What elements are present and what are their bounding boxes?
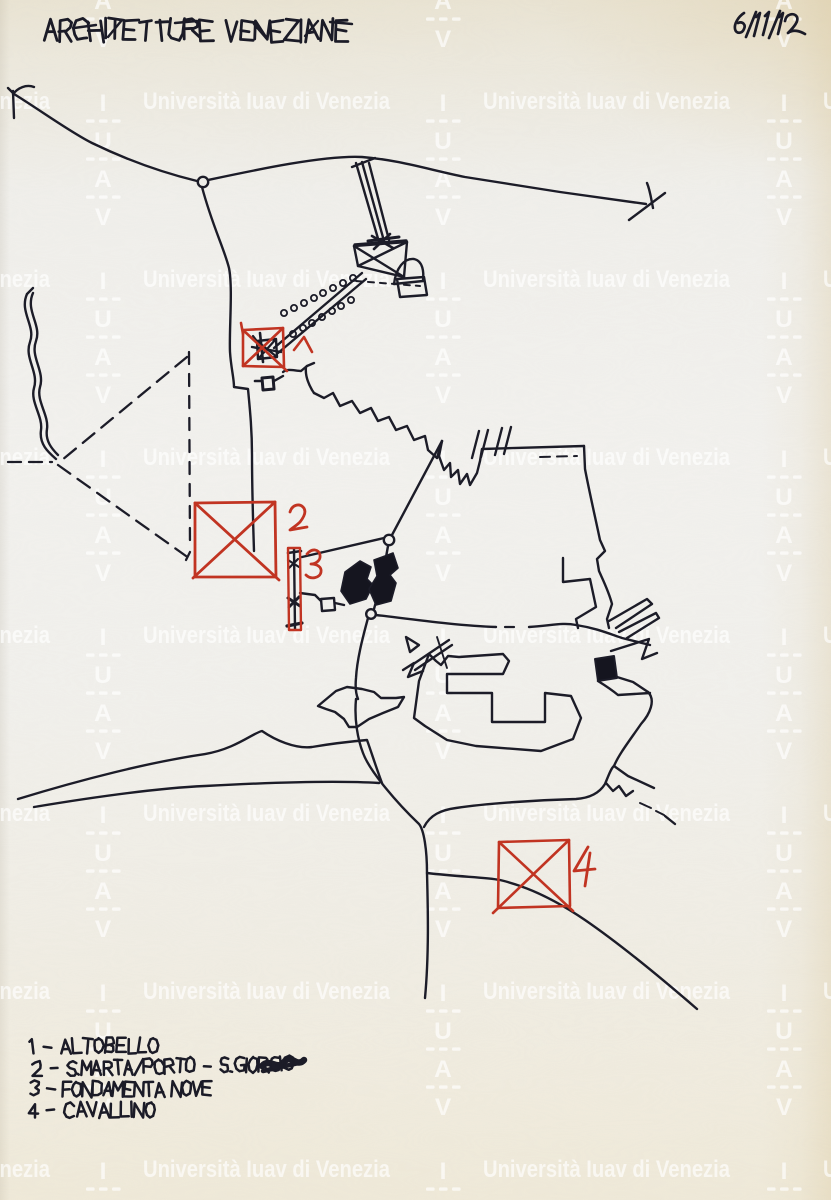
svg-text:A: A xyxy=(775,522,793,549)
svg-text:A: A xyxy=(775,166,793,193)
svg-text:I: I xyxy=(781,980,788,1007)
svg-text:U: U xyxy=(775,484,793,511)
svg-text:Università Iuav di Venezia: Università Iuav di Venezia xyxy=(143,88,390,115)
svg-text:V: V xyxy=(435,26,452,53)
svg-text:I: I xyxy=(100,1158,107,1185)
svg-text:Università Iuav di Venezia: Università Iuav di Venezia xyxy=(823,800,831,827)
svg-text:U: U xyxy=(434,484,452,511)
svg-text:V: V xyxy=(776,204,793,231)
svg-text:V: V xyxy=(95,382,112,409)
svg-text:A: A xyxy=(434,522,452,549)
svg-text:U: U xyxy=(434,306,452,333)
svg-text:I: I xyxy=(100,90,107,117)
svg-text:U: U xyxy=(94,306,112,333)
svg-text:V: V xyxy=(776,1094,793,1121)
svg-text:Università Iuav di Venezia: Università Iuav di Venezia xyxy=(483,978,730,1005)
svg-text:A: A xyxy=(434,878,452,905)
svg-text:U: U xyxy=(775,840,793,867)
svg-text:I: I xyxy=(440,1158,447,1185)
svg-text:A: A xyxy=(94,878,112,905)
svg-text:Università Iuav di Venezia: Università Iuav di Venezia xyxy=(483,88,730,115)
svg-text:I: I xyxy=(440,90,447,117)
svg-text:Università Iuav di Venezia: Università Iuav di Venezia xyxy=(0,444,50,471)
svg-text:I: I xyxy=(781,268,788,295)
svg-text:I: I xyxy=(781,624,788,651)
svg-text:A: A xyxy=(94,344,112,371)
svg-text:Università Iuav di Venezia: Università Iuav di Venezia xyxy=(823,88,831,115)
svg-text:I: I xyxy=(440,980,447,1007)
svg-text:I: I xyxy=(100,624,107,651)
svg-text:Università Iuav di Venezia: Università Iuav di Venezia xyxy=(0,622,50,649)
svg-text:U: U xyxy=(775,128,793,155)
svg-text:Università Iuav di Venezia: Università Iuav di Venezia xyxy=(0,800,50,827)
svg-text:V: V xyxy=(95,738,112,765)
svg-text:I: I xyxy=(781,90,788,117)
svg-text:A: A xyxy=(434,344,452,371)
svg-text:A: A xyxy=(434,1056,452,1083)
svg-text:A: A xyxy=(94,0,112,15)
svg-text:A: A xyxy=(94,700,112,727)
svg-text:Università Iuav di Venezia: Università Iuav di Venezia xyxy=(143,444,390,471)
svg-text:V: V xyxy=(435,560,452,587)
svg-text:I: I xyxy=(100,802,107,829)
svg-text:U: U xyxy=(94,840,112,867)
svg-text:I: I xyxy=(440,268,447,295)
svg-text:V: V xyxy=(95,204,112,231)
svg-text:V: V xyxy=(776,382,793,409)
svg-text:U: U xyxy=(434,128,452,155)
svg-text:I: I xyxy=(781,1158,788,1185)
svg-text:I: I xyxy=(440,802,447,829)
svg-text:V: V xyxy=(776,738,793,765)
svg-text:V: V xyxy=(435,382,452,409)
svg-text:Università Iuav di Venezia: Università Iuav di Venezia xyxy=(823,622,831,649)
svg-text:A: A xyxy=(434,0,452,15)
svg-text:I: I xyxy=(100,446,107,473)
svg-text:Università Iuav di Venezia: Università Iuav di Venezia xyxy=(823,266,831,293)
svg-text:Università Iuav di Venezia: Università Iuav di Venezia xyxy=(0,978,50,1005)
svg-text:A: A xyxy=(434,700,452,727)
svg-text:A: A xyxy=(775,1056,793,1083)
svg-text:Università Iuav di Venezia: Università Iuav di Venezia xyxy=(0,1156,50,1183)
svg-text:A: A xyxy=(775,700,793,727)
svg-text:Università Iuav di Venezia: Università Iuav di Venezia xyxy=(823,444,831,471)
svg-text:U: U xyxy=(775,306,793,333)
svg-text:I: I xyxy=(100,980,107,1007)
svg-text:U: U xyxy=(434,1018,452,1045)
svg-text:U: U xyxy=(434,840,452,867)
svg-text:I: I xyxy=(781,446,788,473)
svg-text:V: V xyxy=(95,916,112,943)
svg-text:Università Iuav di Venezia: Università Iuav di Venezia xyxy=(823,1156,831,1183)
svg-text:Università Iuav di Venezia: Università Iuav di Venezia xyxy=(143,978,390,1005)
svg-text:A: A xyxy=(775,878,793,905)
svg-text:Università Iuav di Venezia: Università Iuav di Venezia xyxy=(0,266,50,293)
svg-text:V: V xyxy=(435,916,452,943)
svg-text:Università Iuav di Venezia: Università Iuav di Venezia xyxy=(143,1156,390,1183)
svg-text:V: V xyxy=(435,204,452,231)
svg-text:A: A xyxy=(94,166,112,193)
svg-text:Università Iuav di Venezia: Università Iuav di Venezia xyxy=(483,622,730,649)
svg-text:U: U xyxy=(434,1196,452,1200)
svg-text:A: A xyxy=(94,522,112,549)
svg-text:U: U xyxy=(775,1196,793,1200)
svg-text:U: U xyxy=(434,662,452,689)
svg-text:V: V xyxy=(435,1094,452,1121)
svg-text:V: V xyxy=(776,916,793,943)
svg-text:V: V xyxy=(95,560,112,587)
svg-text:V: V xyxy=(435,738,452,765)
svg-text:Università Iuav di Venezia: Università Iuav di Venezia xyxy=(483,800,730,827)
svg-text:Università Iuav di Venezia: Università Iuav di Venezia xyxy=(143,800,390,827)
svg-text:Università Iuav di Venezia: Università Iuav di Venezia xyxy=(483,1156,730,1183)
svg-text:I: I xyxy=(100,268,107,295)
svg-text:A: A xyxy=(775,344,793,371)
svg-text:Università Iuav di Venezia: Università Iuav di Venezia xyxy=(483,266,730,293)
svg-text:V: V xyxy=(776,560,793,587)
svg-text:Università Iuav di Venezia: Università Iuav di Venezia xyxy=(143,622,390,649)
svg-text:Università Iuav di Venezia: Università Iuav di Venezia xyxy=(823,978,831,1005)
svg-text:U: U xyxy=(94,1196,112,1200)
svg-text:U: U xyxy=(94,662,112,689)
svg-text:U: U xyxy=(775,1018,793,1045)
svg-text:I: I xyxy=(781,802,788,829)
svg-text:U: U xyxy=(775,662,793,689)
